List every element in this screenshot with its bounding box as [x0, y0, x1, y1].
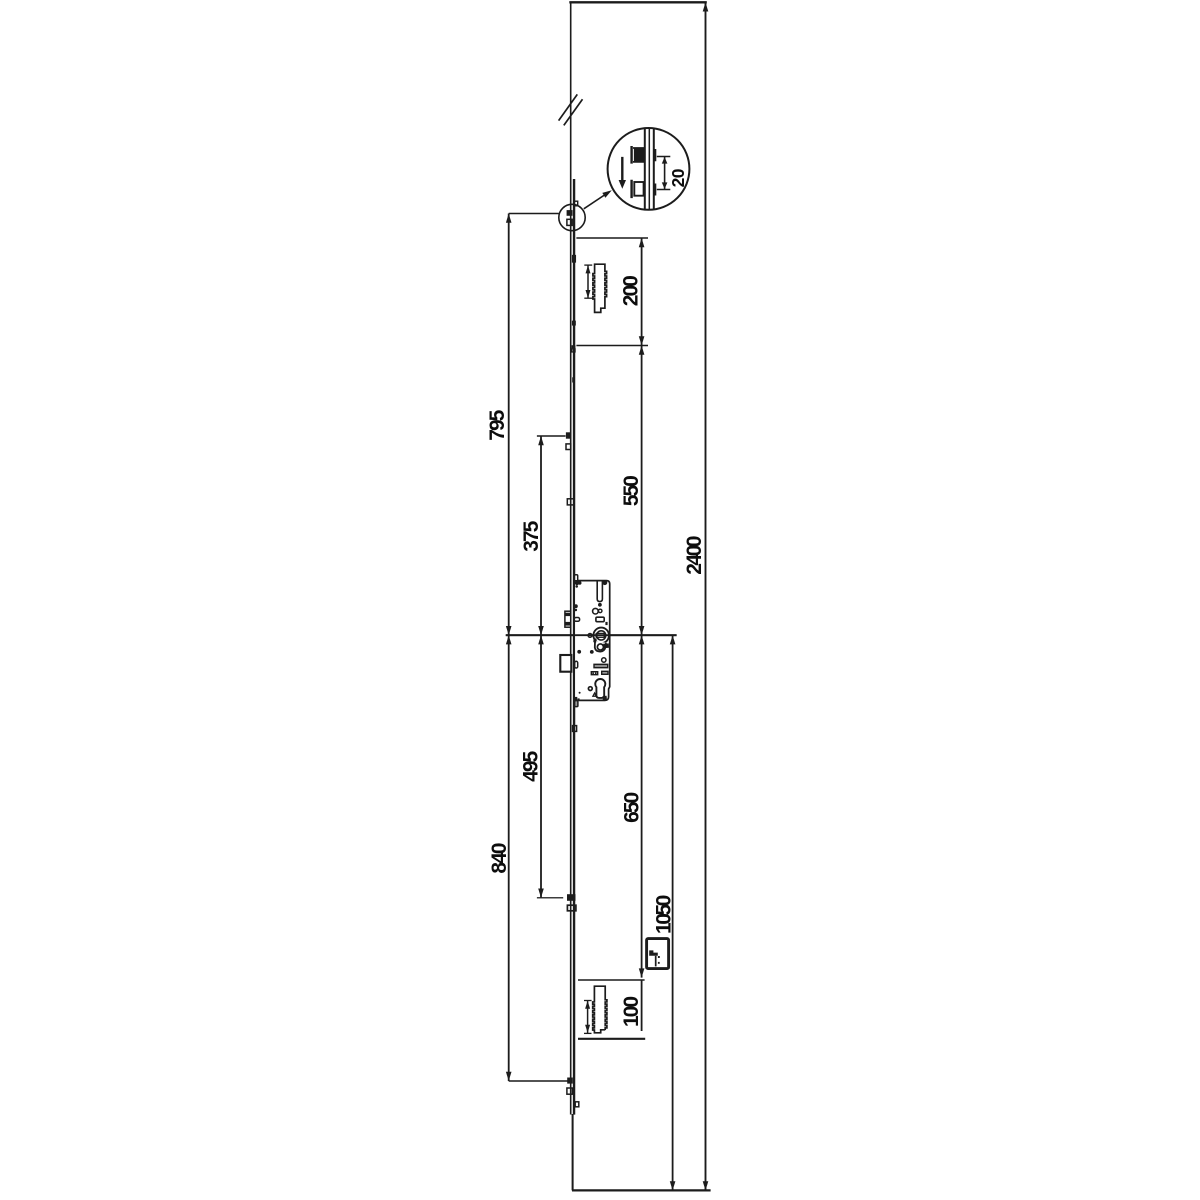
- svg-text:20: 20: [668, 168, 688, 187]
- svg-text:2400: 2400: [683, 536, 706, 575]
- svg-text:200: 200: [620, 276, 643, 306]
- svg-text:495: 495: [519, 750, 542, 781]
- svg-text:550: 550: [620, 476, 643, 506]
- svg-text:795: 795: [486, 409, 509, 440]
- svg-text:650: 650: [621, 793, 644, 823]
- svg-text:375: 375: [520, 520, 543, 551]
- svg-text:840: 840: [488, 843, 511, 873]
- svg-text:1050: 1050: [653, 895, 676, 934]
- svg-text:100: 100: [620, 997, 643, 1027]
